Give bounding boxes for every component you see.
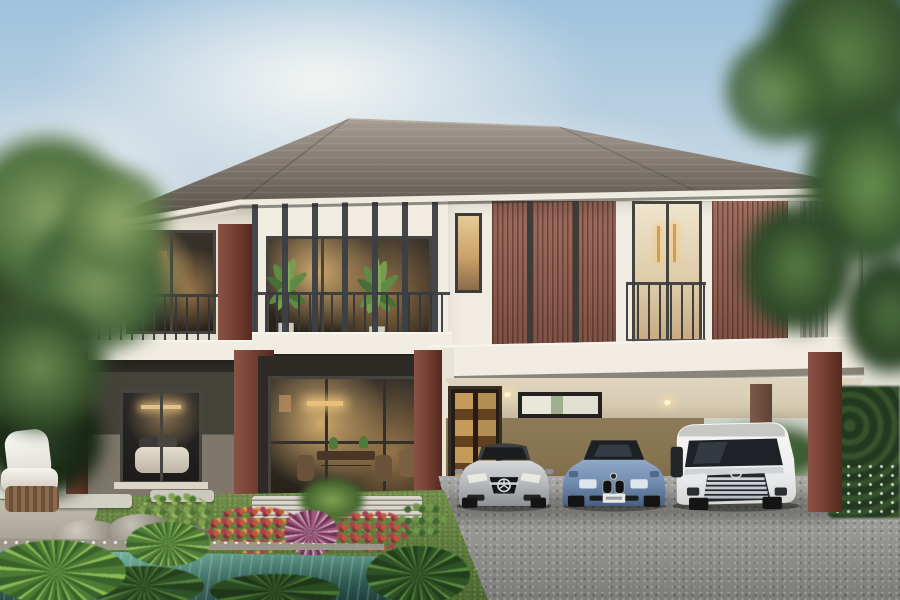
glass-transom xyxy=(271,441,437,444)
table-plant xyxy=(359,436,368,448)
wheel xyxy=(644,496,660,507)
armchair xyxy=(297,455,314,481)
wheel xyxy=(762,497,781,509)
side-mirror xyxy=(545,469,553,474)
carport-right-column xyxy=(808,352,842,512)
recessed-light xyxy=(504,392,511,397)
right-tree-canopy xyxy=(718,30,838,150)
column-living-right xyxy=(414,350,442,510)
wheel xyxy=(462,498,477,508)
fog-light xyxy=(775,488,787,496)
kidney-grille xyxy=(603,480,612,493)
bedroom-glass-door xyxy=(120,390,202,484)
bedroom-door-sill xyxy=(114,482,208,489)
hedge-white-blossoms xyxy=(832,462,900,514)
grille-bar xyxy=(705,487,766,490)
armchair xyxy=(375,455,392,481)
carport-slit-window xyxy=(518,392,602,418)
headlight xyxy=(630,479,647,488)
side-mirror xyxy=(569,471,578,477)
door-mullion xyxy=(160,393,163,481)
side-mirror xyxy=(455,469,463,474)
side-mirror xyxy=(650,471,659,477)
foliage-cluster xyxy=(398,502,446,538)
wall-art xyxy=(279,395,291,412)
chair-wicker-base xyxy=(5,486,59,512)
grille-bar xyxy=(704,496,768,499)
headlight xyxy=(579,479,596,488)
dining-table xyxy=(317,451,375,460)
plate-characters xyxy=(606,497,622,500)
silver-sedan xyxy=(454,430,554,512)
recessed-light xyxy=(664,400,671,405)
pendant-light-bar xyxy=(307,401,343,406)
wheel xyxy=(689,498,708,510)
white-minivan xyxy=(668,410,810,512)
bright-grass-plant xyxy=(126,522,210,566)
windshield-reflection xyxy=(594,444,633,456)
grille-bar xyxy=(706,482,765,485)
aquatic-plants xyxy=(210,574,340,600)
left-tree-canopy xyxy=(55,160,175,280)
fog-light xyxy=(687,488,699,496)
roundel-emblem xyxy=(610,473,616,479)
windshield xyxy=(480,447,527,459)
foreground-leaves xyxy=(366,546,470,600)
wheel xyxy=(531,498,546,508)
blue-sedan xyxy=(558,426,670,512)
house-exterior-render xyxy=(0,0,900,600)
table-plant xyxy=(329,437,338,449)
grille-bar xyxy=(704,491,767,494)
wheel xyxy=(568,496,584,507)
kidney-grille xyxy=(615,480,624,493)
side-window xyxy=(671,447,683,478)
